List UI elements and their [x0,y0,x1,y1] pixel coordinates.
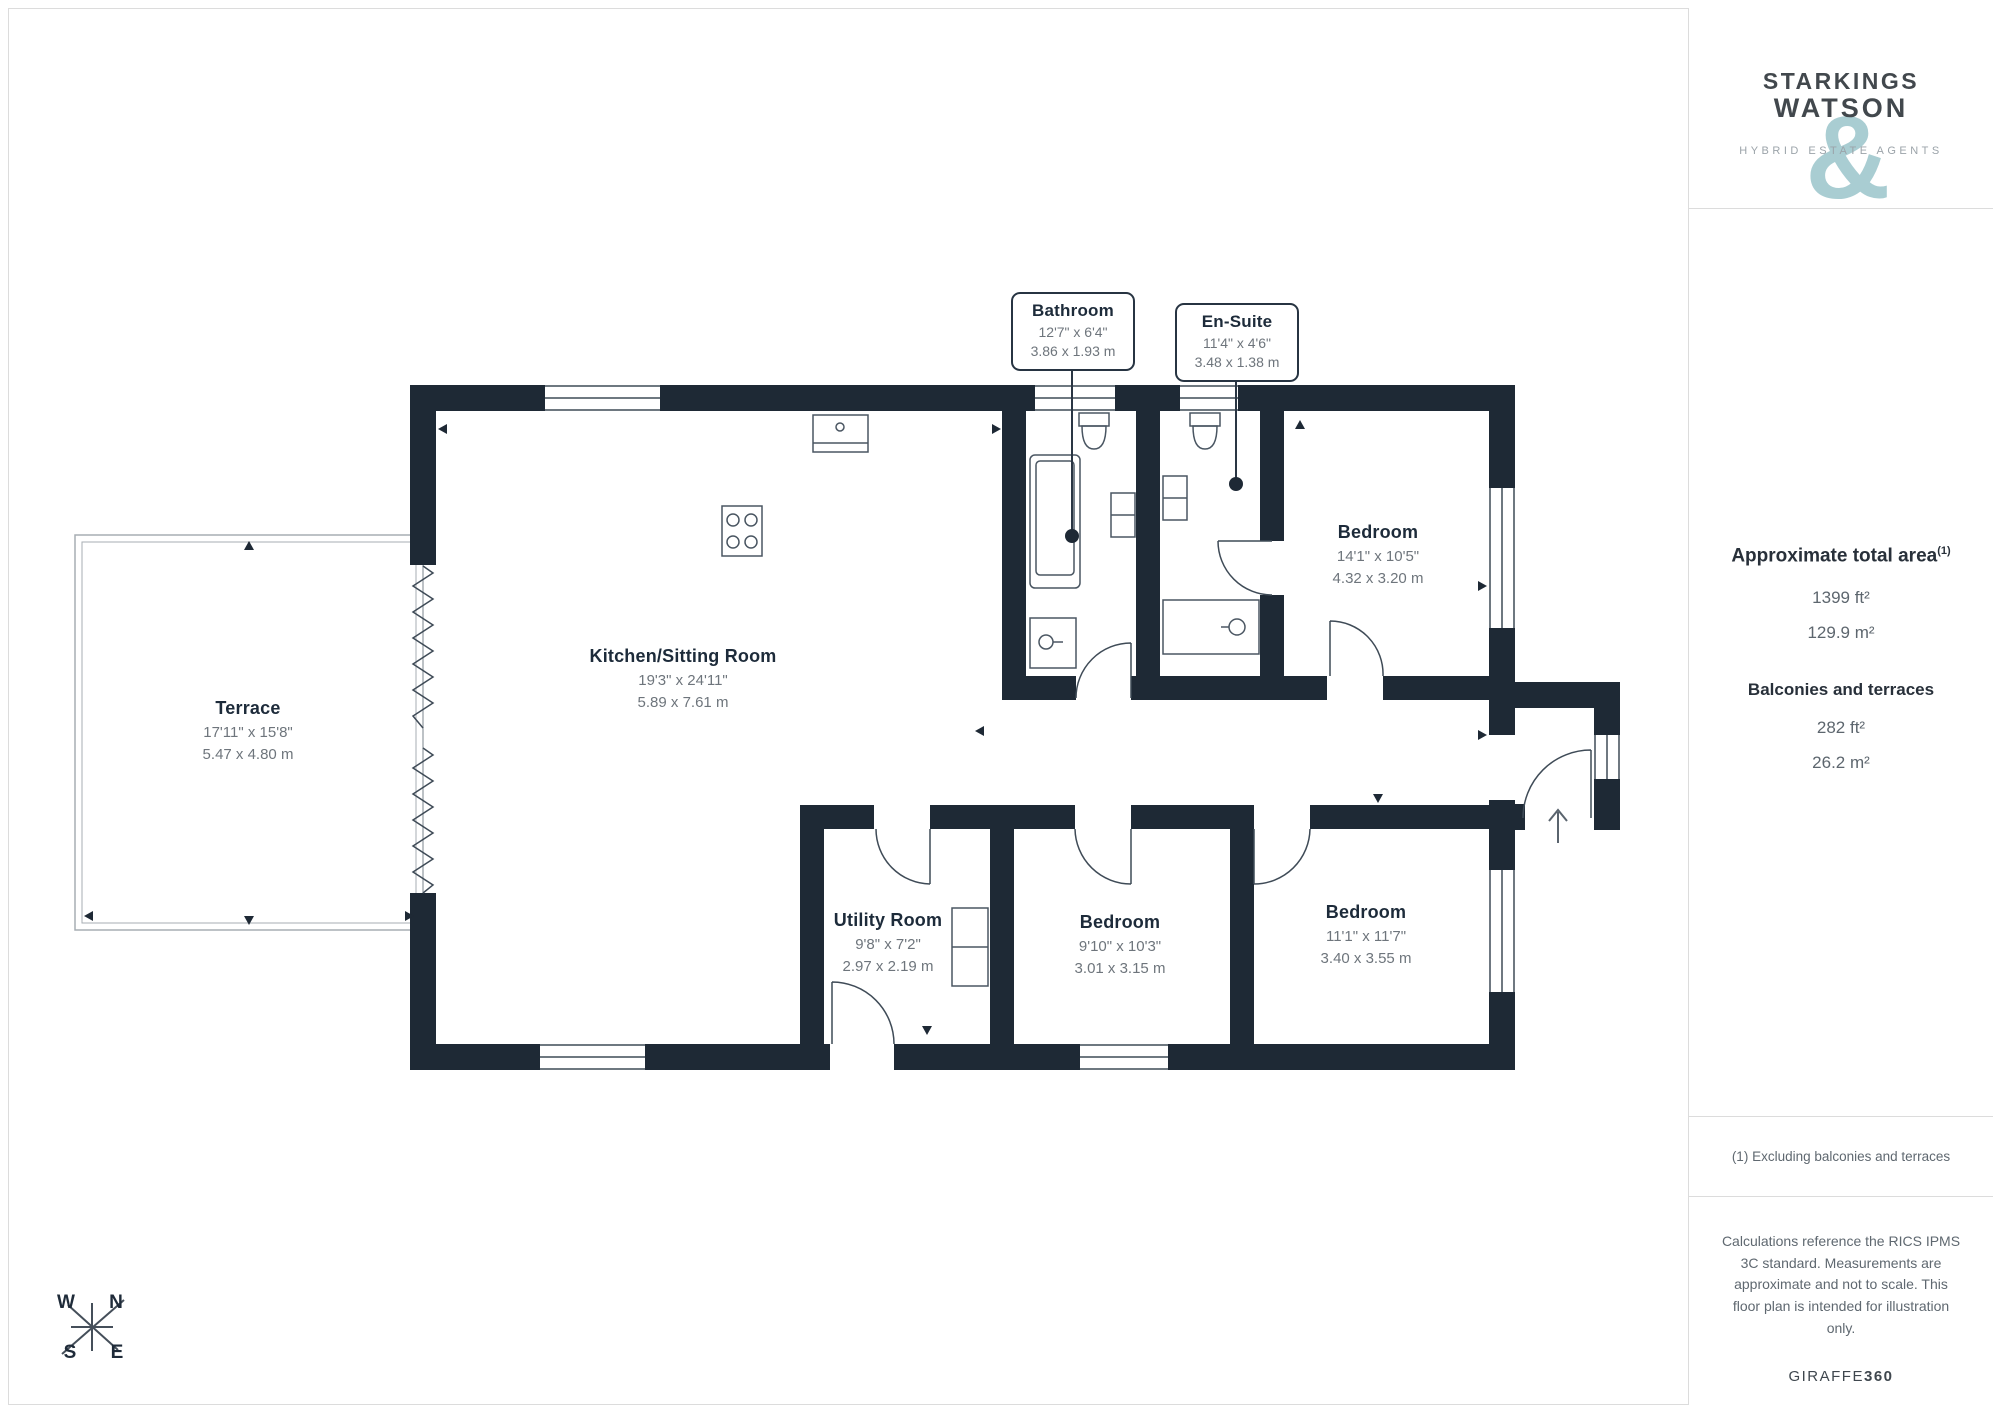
utility-radiator-icon [952,908,988,986]
giraffe-text: GIRAFFE [1788,1368,1864,1385]
area-summary-section: Approximate total area(1) 1399 ft² 129.9… [1689,209,1993,1117]
room-label-kitchen-sitting-room: Kitchen/Sitting Room 19'3" x 24'11" 5.89… [590,646,777,714]
total-area-heading-text: Approximate total area [1731,546,1937,567]
footnote-text: (1) Excluding balconies and terraces [1689,1117,1993,1197]
balconies-ft: 282 ft² [1817,719,1865,736]
balconies-m: 26.2 m² [1812,754,1870,771]
hob-icon [722,506,762,556]
shower-tray-icon [1163,600,1259,654]
kitchen-sink-icon [813,415,868,452]
info-sidebar: & STARKINGS WATSON HYBRID ESTATE AGENTS … [1688,8,1993,1405]
room-label-utility-room: Utility Room 9'8" x 7'2" 2.97 x 2.19 m [834,910,942,978]
room-label-bedroom-2: Bedroom 9'10" x 10'3" 3.01 x 3.15 m [1075,912,1166,980]
callout-bathroom: Bathroom 12'7" x 6'4" 3.86 x 1.93 m [1011,292,1135,371]
toilet-icon [1190,413,1220,449]
compass-east-label: E [111,1342,124,1363]
radiator-icon [1111,493,1135,537]
logo-name-line2: WATSON [1739,94,1942,122]
balconies-heading: Balconies and terraces [1748,680,1934,700]
compass-south-label: S [64,1342,77,1363]
compass-north-label: N [109,1292,123,1313]
disclaimer-section: Calculations reference the RICS IPMS 3C … [1689,1197,1993,1405]
floorplan-page: W N S E Terrace 17'11" x 15'8" 5.47 x 4.… [0,0,2000,1415]
logo-section: & STARKINGS WATSON HYBRID ESTATE AGENTS [1689,8,1993,209]
entry-arrow-icon [1549,810,1567,843]
compass-west-label: W [57,1292,75,1313]
logo-name-line1: STARKINGS [1739,69,1942,94]
toilet-icon [1079,413,1109,449]
compass-rose: W N S E [57,1292,124,1363]
footnote-marker: (1) [1937,545,1950,557]
room-label-bedroom-1: Bedroom 14'1" x 10'5" 4.32 x 3.20 m [1333,522,1424,590]
room-label-terrace: Terrace 17'11" x 15'8" 5.47 x 4.80 m [203,698,294,766]
giraffe360-logo: GIRAFFE360 [1719,1365,1963,1388]
logo-tagline: HYBRID ESTATE AGENTS [1739,145,1942,157]
total-area-heading: Approximate total area(1) [1731,545,1950,567]
basin-icon [1163,476,1187,520]
callout-en-suite: En-Suite 11'4" x 4'6" 3.48 x 1.38 m [1175,303,1299,382]
agency-logo: & STARKINGS WATSON HYBRID ESTATE AGENTS [1739,59,1942,157]
room-label-bedroom-3: Bedroom 11'1" x 11'7" 3.40 x 3.55 m [1321,902,1412,970]
total-area-m: 129.9 m² [1807,624,1874,641]
total-area-ft: 1399 ft² [1812,589,1870,606]
walls [410,385,1620,1070]
shower-icon [1030,618,1076,668]
disclaimer-text: Calculations reference the RICS IPMS 3C … [1720,1231,1962,1339]
giraffe-number: 360 [1864,1368,1894,1385]
